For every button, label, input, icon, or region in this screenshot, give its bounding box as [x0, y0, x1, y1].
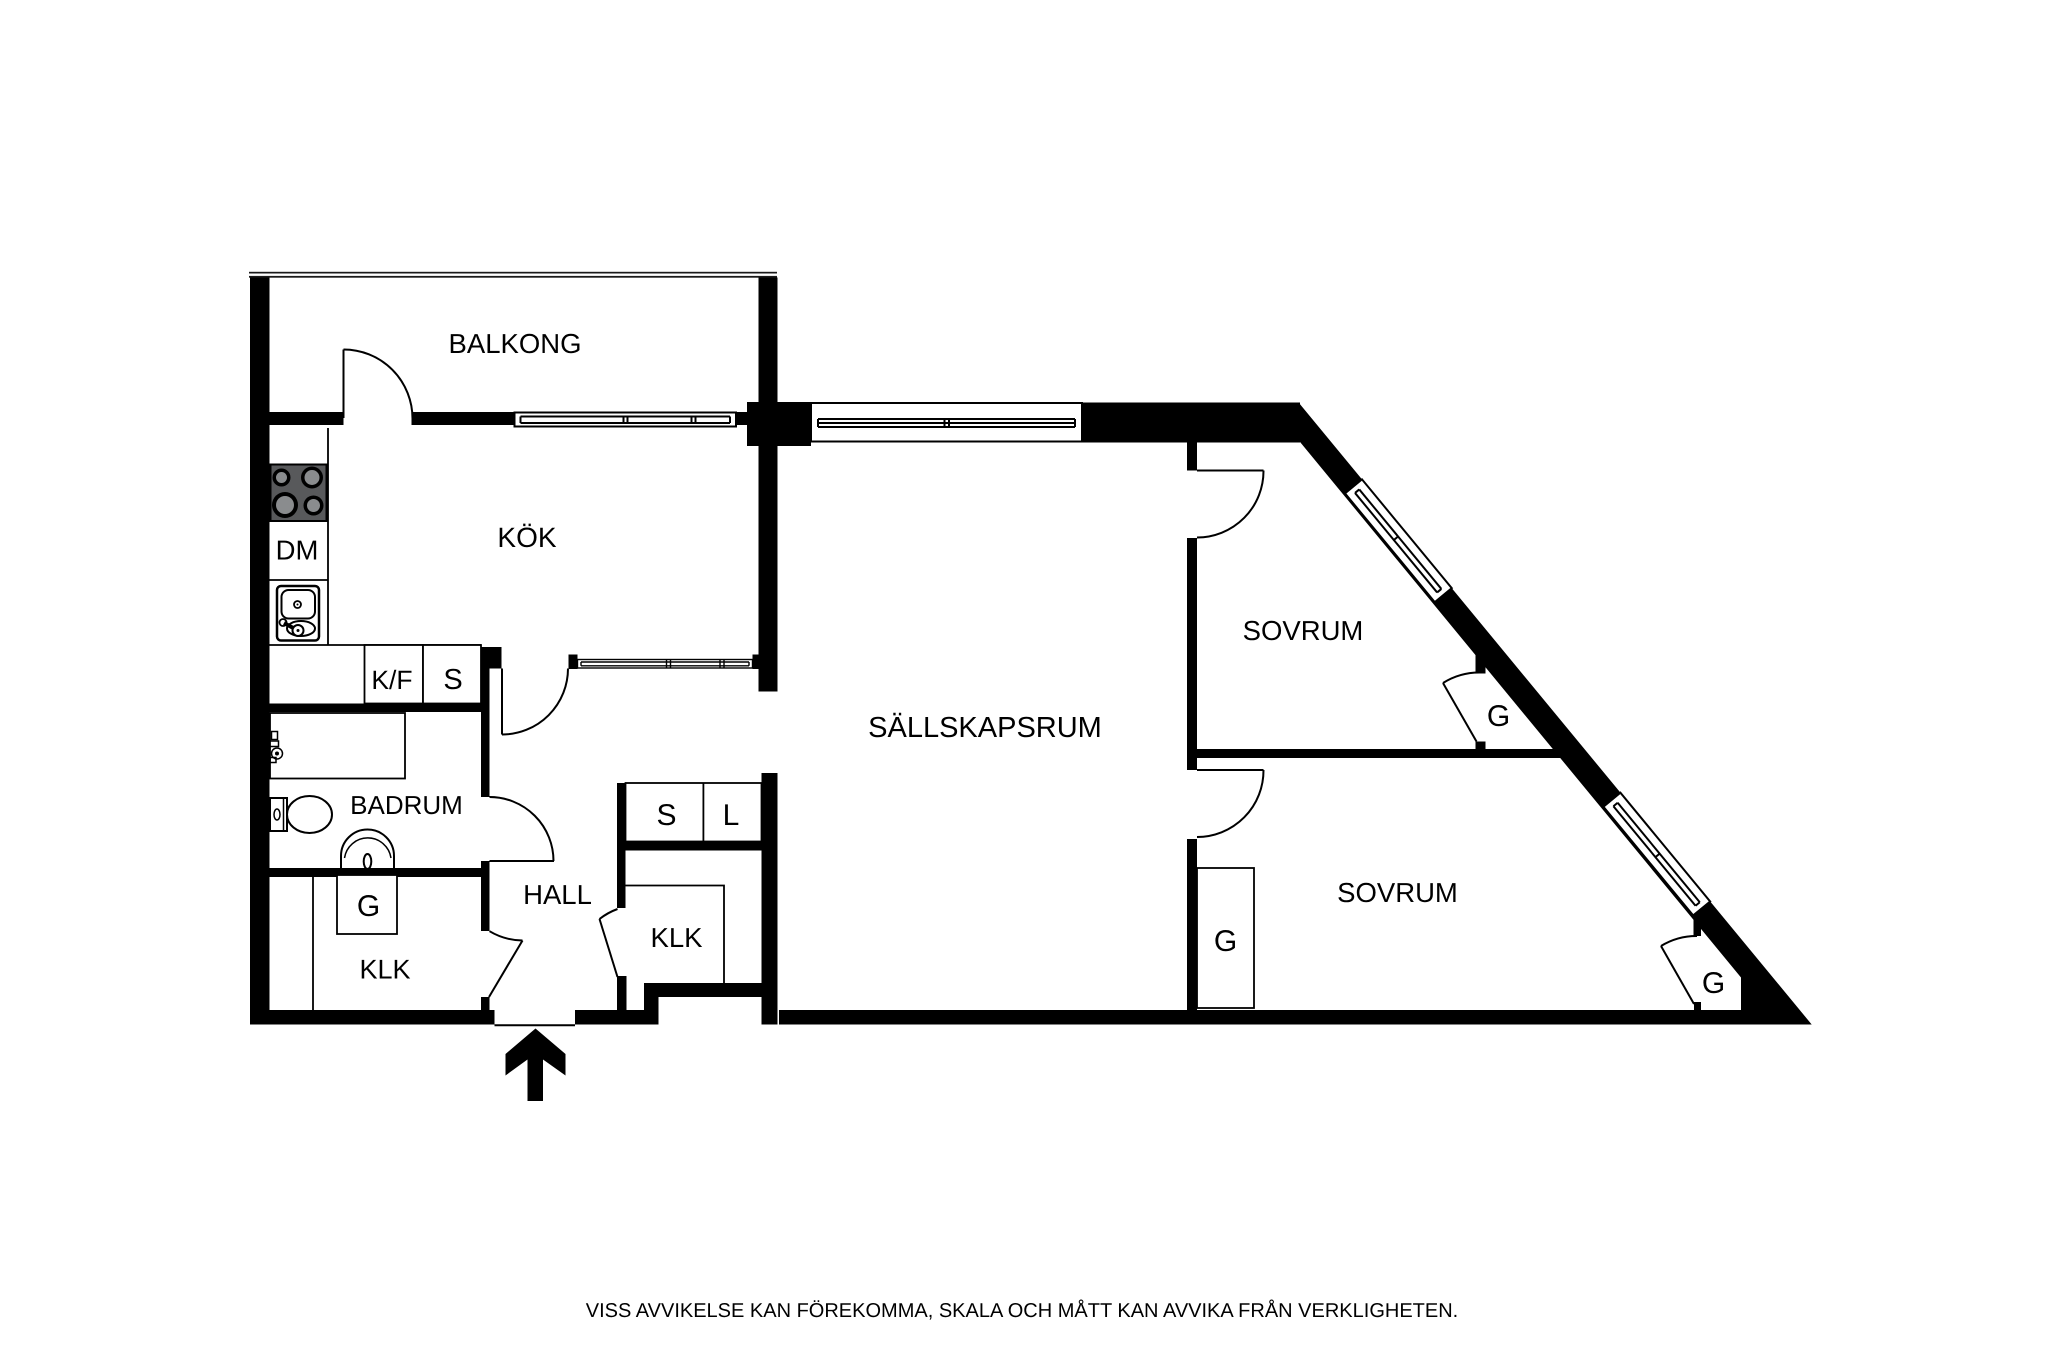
- svg-text:G: G: [1702, 967, 1725, 1000]
- svg-text:G: G: [1214, 925, 1237, 958]
- svg-text:L: L: [723, 799, 740, 832]
- svg-text:G: G: [1487, 700, 1510, 733]
- svg-text:BALKONG: BALKONG: [449, 328, 582, 359]
- svg-text:VISS AVVIKELSE KAN FÖREKOMMA,: VISS AVVIKELSE KAN FÖREKOMMA, SKALA OCH …: [586, 1299, 1458, 1322]
- svg-text:G: G: [357, 890, 380, 923]
- svg-text:HALL: HALL: [523, 879, 592, 910]
- svg-text:KLK: KLK: [651, 922, 704, 953]
- svg-text:KLK: KLK: [359, 955, 410, 985]
- svg-text:DM: DM: [276, 535, 319, 566]
- svg-text:S: S: [656, 799, 676, 832]
- svg-text:SOVRUM: SOVRUM: [1337, 877, 1458, 908]
- svg-text:KÖK: KÖK: [497, 522, 556, 553]
- svg-text:SÄLLSKAPSRUM: SÄLLSKAPSRUM: [868, 712, 1102, 744]
- svg-text:S: S: [443, 664, 462, 696]
- svg-text:K/F: K/F: [371, 665, 412, 695]
- svg-text:BADRUM: BADRUM: [350, 790, 463, 820]
- svg-text:SOVRUM: SOVRUM: [1243, 615, 1364, 646]
